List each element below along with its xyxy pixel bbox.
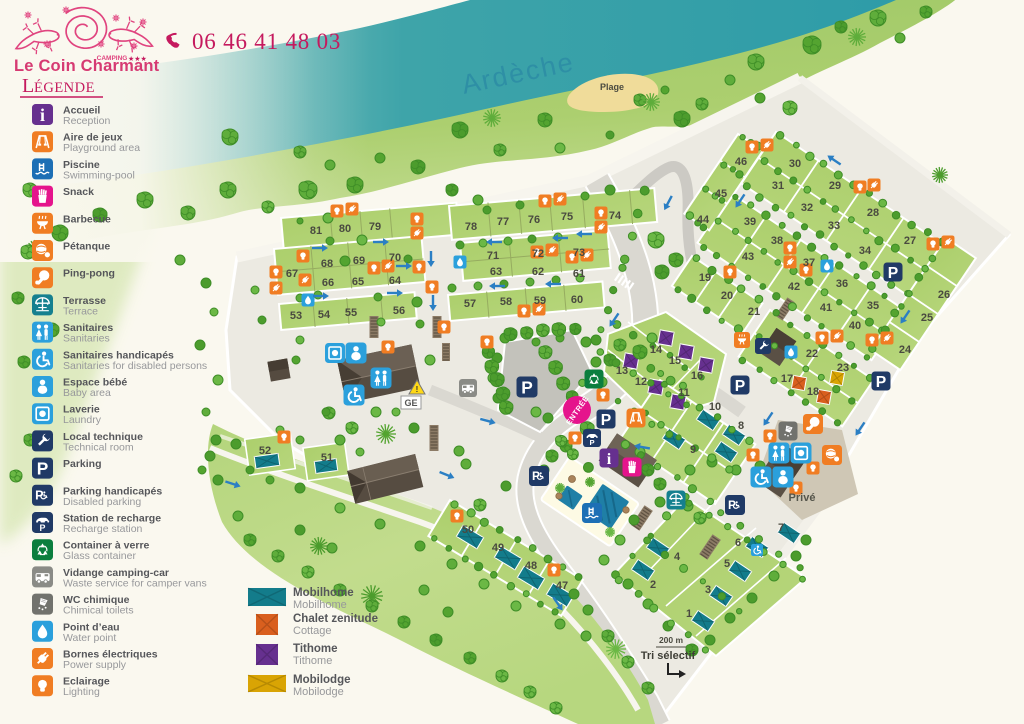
- svg-text:65: 65: [352, 276, 364, 288]
- svg-text:P: P: [735, 378, 745, 395]
- svg-text:20: 20: [721, 290, 733, 302]
- svg-text:68: 68: [321, 258, 333, 270]
- svg-text:46: 46: [735, 156, 747, 168]
- svg-text:40: 40: [849, 320, 861, 332]
- svg-text:64: 64: [389, 275, 402, 287]
- svg-text:P: P: [876, 374, 886, 391]
- svg-text:Laundry: Laundry: [63, 414, 102, 426]
- svg-text:6: 6: [735, 537, 741, 549]
- svg-text:78: 78: [465, 221, 477, 233]
- svg-text:81: 81: [310, 225, 322, 237]
- svg-text:61: 61: [573, 268, 585, 280]
- svg-text:71: 71: [487, 250, 499, 262]
- svg-text:51: 51: [321, 452, 333, 464]
- svg-text:41: 41: [820, 302, 832, 314]
- svg-text:15: 15: [669, 355, 681, 367]
- svg-text:7: 7: [778, 522, 784, 534]
- svg-text:Cottage: Cottage: [293, 625, 332, 637]
- svg-text:P: P: [888, 265, 898, 282]
- svg-text:69: 69: [353, 255, 365, 267]
- svg-text:Mobilodge: Mobilodge: [293, 686, 344, 698]
- svg-text:49: 49: [492, 542, 504, 554]
- svg-text:44: 44: [697, 214, 710, 226]
- svg-text:Ping-pong: Ping-pong: [63, 268, 115, 280]
- svg-text:P: P: [521, 378, 533, 398]
- svg-text:55: 55: [345, 307, 357, 319]
- svg-text:63: 63: [490, 266, 502, 278]
- svg-text:P: P: [35, 489, 43, 503]
- svg-text:19: 19: [699, 272, 711, 284]
- svg-text:Mobilhome: Mobilhome: [293, 599, 347, 611]
- svg-text:35: 35: [867, 300, 879, 312]
- svg-text:29: 29: [829, 180, 841, 192]
- svg-text:Mobilhome: Mobilhome: [293, 587, 354, 599]
- svg-text:56: 56: [393, 305, 405, 317]
- svg-text:39: 39: [744, 216, 756, 228]
- svg-text:Waste service for camper vans: Waste service for camper vans: [63, 577, 207, 589]
- svg-text:Glass container: Glass container: [63, 550, 136, 562]
- svg-text:9: 9: [690, 444, 696, 456]
- svg-text:36: 36: [836, 278, 848, 290]
- svg-text:Mobilodge: Mobilodge: [293, 674, 351, 686]
- svg-text:2: 2: [650, 579, 656, 591]
- svg-text:Power supply: Power supply: [63, 659, 127, 671]
- svg-text:67: 67: [286, 268, 298, 280]
- svg-text:P: P: [728, 498, 736, 512]
- svg-text:26: 26: [938, 289, 950, 301]
- svg-text:Sanitaries for disabled person: Sanitaries for disabled persons: [63, 360, 207, 372]
- svg-text:Chimical toilets: Chimical toilets: [63, 605, 134, 617]
- svg-text:i: i: [40, 105, 45, 125]
- svg-text:72: 72: [532, 248, 544, 260]
- svg-text:21: 21: [748, 306, 760, 318]
- svg-text:Tithome: Tithome: [293, 643, 338, 655]
- svg-text:P: P: [37, 459, 49, 479]
- svg-text:!: !: [416, 385, 419, 394]
- svg-text:200 m: 200 m: [659, 635, 684, 645]
- svg-text:Swimming-pool: Swimming-pool: [63, 169, 135, 181]
- svg-text:8: 8: [738, 420, 744, 432]
- svg-text:53: 53: [290, 310, 302, 322]
- svg-text:P: P: [532, 469, 540, 483]
- svg-text:11: 11: [678, 387, 690, 399]
- svg-text:Recharge station: Recharge station: [63, 523, 143, 535]
- svg-text:P: P: [589, 438, 594, 447]
- svg-text:18: 18: [807, 386, 819, 398]
- svg-text:79: 79: [369, 221, 381, 233]
- svg-text:33: 33: [828, 220, 840, 232]
- svg-text:GE: GE: [404, 398, 417, 408]
- svg-text:Baby area: Baby area: [63, 387, 111, 399]
- svg-text:52: 52: [259, 445, 271, 457]
- svg-text:Technical room: Technical room: [63, 441, 134, 453]
- svg-text:12: 12: [635, 376, 647, 388]
- svg-text:66: 66: [322, 277, 334, 289]
- svg-text:06 46 41 48 03: 06 46 41 48 03: [192, 29, 341, 54]
- svg-text:10: 10: [709, 401, 721, 413]
- svg-text:Pétanque: Pétanque: [63, 241, 110, 253]
- svg-text:27: 27: [904, 235, 916, 247]
- svg-text:Plage: Plage: [600, 82, 624, 92]
- svg-text:30: 30: [789, 158, 801, 170]
- svg-text:Terrace: Terrace: [63, 305, 98, 317]
- svg-text:28: 28: [867, 207, 879, 219]
- svg-text:24: 24: [899, 344, 912, 356]
- svg-text:Disabled parking: Disabled parking: [63, 496, 141, 508]
- svg-text:Le Coin Charmant: Le Coin Charmant: [14, 57, 160, 75]
- svg-text:62: 62: [532, 266, 544, 278]
- svg-text:17: 17: [781, 373, 793, 385]
- svg-text:47: 47: [556, 580, 568, 592]
- svg-text:31: 31: [772, 180, 784, 192]
- svg-text:38: 38: [771, 235, 783, 247]
- svg-text:Playground area: Playground area: [63, 142, 140, 154]
- svg-text:73: 73: [573, 247, 585, 259]
- svg-text:Lighting: Lighting: [63, 686, 100, 698]
- svg-text:48: 48: [525, 560, 537, 572]
- svg-text:Snack: Snack: [63, 186, 94, 198]
- svg-text:ÉGENDE: ÉGENDE: [34, 79, 95, 96]
- svg-text:22: 22: [806, 348, 818, 360]
- svg-text:43: 43: [742, 251, 754, 263]
- svg-text:Tri sélectif: Tri sélectif: [641, 650, 696, 662]
- svg-text:74: 74: [609, 210, 622, 222]
- svg-text:32: 32: [801, 202, 813, 214]
- svg-text:4: 4: [674, 551, 681, 563]
- svg-text:Chalet zenitude: Chalet zenitude: [293, 613, 378, 625]
- svg-text:37: 37: [803, 257, 815, 269]
- svg-text:3: 3: [705, 584, 711, 596]
- svg-text:i: i: [607, 451, 612, 468]
- svg-text:Reception: Reception: [63, 115, 110, 127]
- svg-text:60: 60: [571, 294, 583, 306]
- svg-text:34: 34: [859, 245, 872, 257]
- svg-text:76: 76: [528, 214, 540, 226]
- svg-text:42: 42: [788, 281, 800, 293]
- svg-text:58: 58: [500, 296, 512, 308]
- svg-text:57: 57: [464, 298, 476, 310]
- svg-text:P: P: [40, 523, 46, 533]
- svg-text:16: 16: [691, 370, 703, 382]
- svg-text:P: P: [601, 412, 611, 429]
- svg-text:50: 50: [462, 524, 474, 536]
- svg-text:75: 75: [561, 211, 573, 223]
- svg-text:45: 45: [715, 188, 727, 200]
- svg-text:13: 13: [616, 365, 628, 377]
- svg-text:Barbecue: Barbecue: [63, 213, 111, 225]
- svg-text:Tithome: Tithome: [293, 655, 332, 667]
- svg-text:5: 5: [724, 558, 730, 570]
- svg-text:54: 54: [318, 309, 331, 321]
- svg-text:77: 77: [497, 216, 509, 228]
- svg-text:25: 25: [921, 312, 933, 324]
- svg-text:Sanitaries: Sanitaries: [63, 333, 110, 345]
- svg-text:70: 70: [389, 252, 401, 264]
- svg-text:Parking: Parking: [63, 458, 102, 470]
- svg-text:Privé: Privé: [789, 492, 816, 504]
- svg-text:59: 59: [534, 295, 546, 307]
- svg-text:80: 80: [339, 223, 351, 235]
- svg-text:1: 1: [686, 608, 692, 620]
- svg-text:14: 14: [650, 344, 663, 356]
- svg-text:L: L: [22, 75, 34, 97]
- svg-text:Water point: Water point: [63, 632, 116, 644]
- svg-text:23: 23: [837, 362, 849, 374]
